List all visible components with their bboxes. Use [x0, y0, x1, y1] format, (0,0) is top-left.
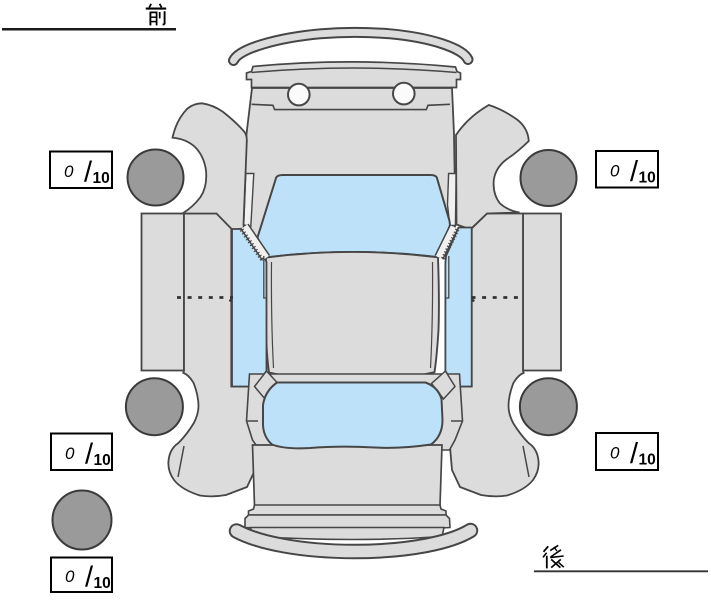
svg-text:10: 10	[93, 170, 110, 187]
svg-text:10: 10	[639, 170, 656, 187]
svg-text:0: 0	[64, 162, 74, 181]
svg-text:0: 0	[610, 162, 620, 181]
svg-text:10: 10	[94, 452, 111, 469]
svg-text:0: 0	[610, 444, 620, 463]
svg-text:0: 0	[65, 567, 75, 586]
svg-text:10: 10	[94, 575, 111, 592]
svg-text:10: 10	[639, 452, 656, 469]
svg-text:0: 0	[65, 444, 75, 463]
